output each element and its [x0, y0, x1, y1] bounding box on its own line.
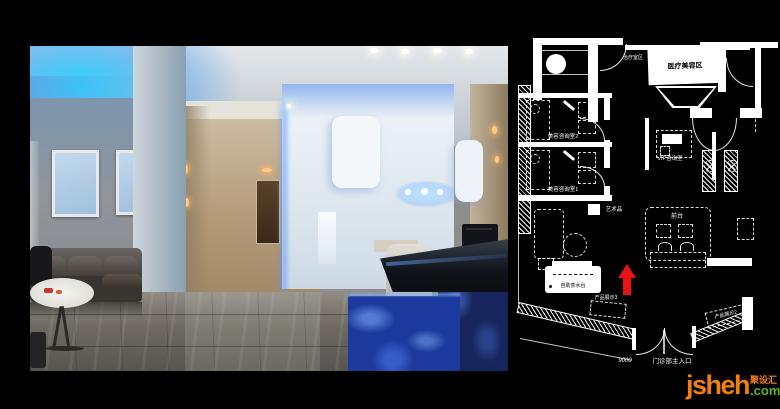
watermark-right-block: 聚设汇 .com — [750, 376, 780, 397]
tea-counter-dot — [549, 285, 552, 288]
room-label: 艺术品 — [602, 207, 626, 214]
corridor-floor-reflection — [185, 292, 320, 371]
stool — [30, 332, 46, 368]
entrance-door-arc — [636, 328, 665, 355]
entrance-label: 门诊部主入口 — [640, 358, 704, 366]
plan-wall — [518, 142, 612, 147]
doorway-light — [262, 168, 272, 172]
north-arrow-stem — [623, 278, 631, 295]
plan-wall — [718, 42, 726, 92]
plan-wall — [690, 108, 712, 118]
chair-x-symbol — [726, 160, 738, 172]
wall-sconce-light — [492, 126, 497, 134]
logo-glow-dot — [421, 188, 428, 195]
furniture-chair — [578, 170, 596, 184]
plan-dashed-line — [755, 90, 757, 132]
room-label: 自助茶水台 — [547, 283, 599, 289]
door-arc — [714, 118, 737, 151]
rounded-wall-panel — [332, 116, 380, 188]
bay-window-inner — [657, 88, 715, 106]
watermark-brand-text: jsheh — [686, 374, 749, 397]
display-cabinet — [737, 218, 754, 240]
entrance-door-arc — [664, 328, 693, 355]
table-decor-red — [56, 290, 62, 294]
desk-blue-marble-front — [348, 296, 460, 371]
downlight — [465, 49, 473, 54]
artwork-pedestal — [588, 204, 600, 215]
plan-wall — [700, 42, 778, 48]
interior-photo — [30, 46, 508, 371]
table-base — [46, 346, 84, 351]
plan-wall — [604, 186, 610, 201]
furniture-chair — [678, 224, 693, 238]
furniture-desk — [578, 152, 596, 168]
glowing-logo-sign — [395, 181, 457, 207]
room-box-medical-beauty: 医疗美容区 — [647, 46, 722, 86]
coffee-table-top — [30, 278, 94, 308]
logo-glow-dot — [405, 189, 411, 195]
furniture-chair — [578, 120, 596, 134]
room-label: 美容咨询室2 — [528, 134, 598, 141]
sofa-cushion — [68, 256, 102, 276]
door-arc — [726, 58, 753, 87]
downlight — [433, 48, 441, 53]
plan-line — [518, 232, 519, 304]
furniture-stool — [530, 154, 540, 164]
plan-wall — [604, 140, 610, 168]
floor-plan: 治疗室区 医疗美容区 美容咨询室2 — [518, 28, 780, 380]
downlight — [286, 104, 291, 108]
menu-display-stand — [318, 212, 336, 264]
plan-wall — [518, 195, 612, 201]
sofa-bolster — [102, 274, 142, 288]
room-label: 前台 — [653, 214, 701, 221]
tea-counter-inner — [553, 274, 593, 276]
fan-symbol — [680, 242, 694, 251]
watermark-domain-suffix: .com — [750, 385, 780, 397]
plan-wall — [533, 38, 542, 100]
table-decor-red — [44, 288, 53, 293]
design-presentation: 治疗室区 医疗美容区 美容咨询室2 — [0, 0, 780, 409]
north-arrow-head — [618, 264, 636, 278]
furniture-item — [563, 150, 576, 161]
plan-line — [542, 74, 588, 75]
room-label: 美容咨询室1 — [528, 187, 598, 194]
plan-wall — [604, 93, 610, 120]
furniture-round-table — [563, 233, 587, 257]
furniture-chair — [660, 146, 670, 156]
wall-sconce-light — [495, 156, 499, 163]
downlight — [370, 48, 378, 53]
downlight — [401, 49, 409, 54]
display-cabinet — [589, 300, 626, 319]
furniture-desk — [578, 102, 596, 118]
plan-wall — [740, 108, 762, 118]
rounded-wall-panel — [455, 140, 483, 202]
watermark-logo: jsheh 聚设汇 .com — [686, 374, 780, 397]
furniture-item — [563, 100, 576, 111]
desk-edge-glow — [348, 293, 460, 296]
feature-wall-blue-glow-top — [282, 84, 454, 118]
chair-x-symbol — [704, 160, 716, 172]
room-label: 医疗美容区 — [667, 60, 702, 71]
plan-line — [542, 50, 588, 51]
furniture-chair — [656, 224, 671, 238]
printer-slot — [466, 228, 492, 230]
feature-wall-blue-glow-left — [277, 101, 287, 291]
furniture-sofa — [534, 209, 564, 259]
sofa-cushion — [104, 256, 138, 276]
furniture-item — [662, 134, 682, 144]
plan-column-round — [546, 54, 566, 74]
plan-wall — [518, 93, 612, 98]
bay-window — [655, 86, 717, 108]
furniture-stool — [530, 104, 540, 114]
room-label: 治疗室区 — [618, 55, 648, 61]
logo-glow-dot — [437, 189, 443, 195]
front-desk-counter — [650, 252, 706, 268]
fan-symbol — [658, 242, 672, 251]
plan-wall — [707, 258, 752, 266]
artwork-frame — [52, 150, 99, 217]
door-arc — [692, 118, 715, 151]
tea-counter: 自助茶水台 — [545, 266, 601, 293]
room-label: VIP咨询室 — [644, 156, 696, 163]
dimension-label: 9000 — [614, 358, 636, 365]
door-leaf — [663, 330, 665, 354]
